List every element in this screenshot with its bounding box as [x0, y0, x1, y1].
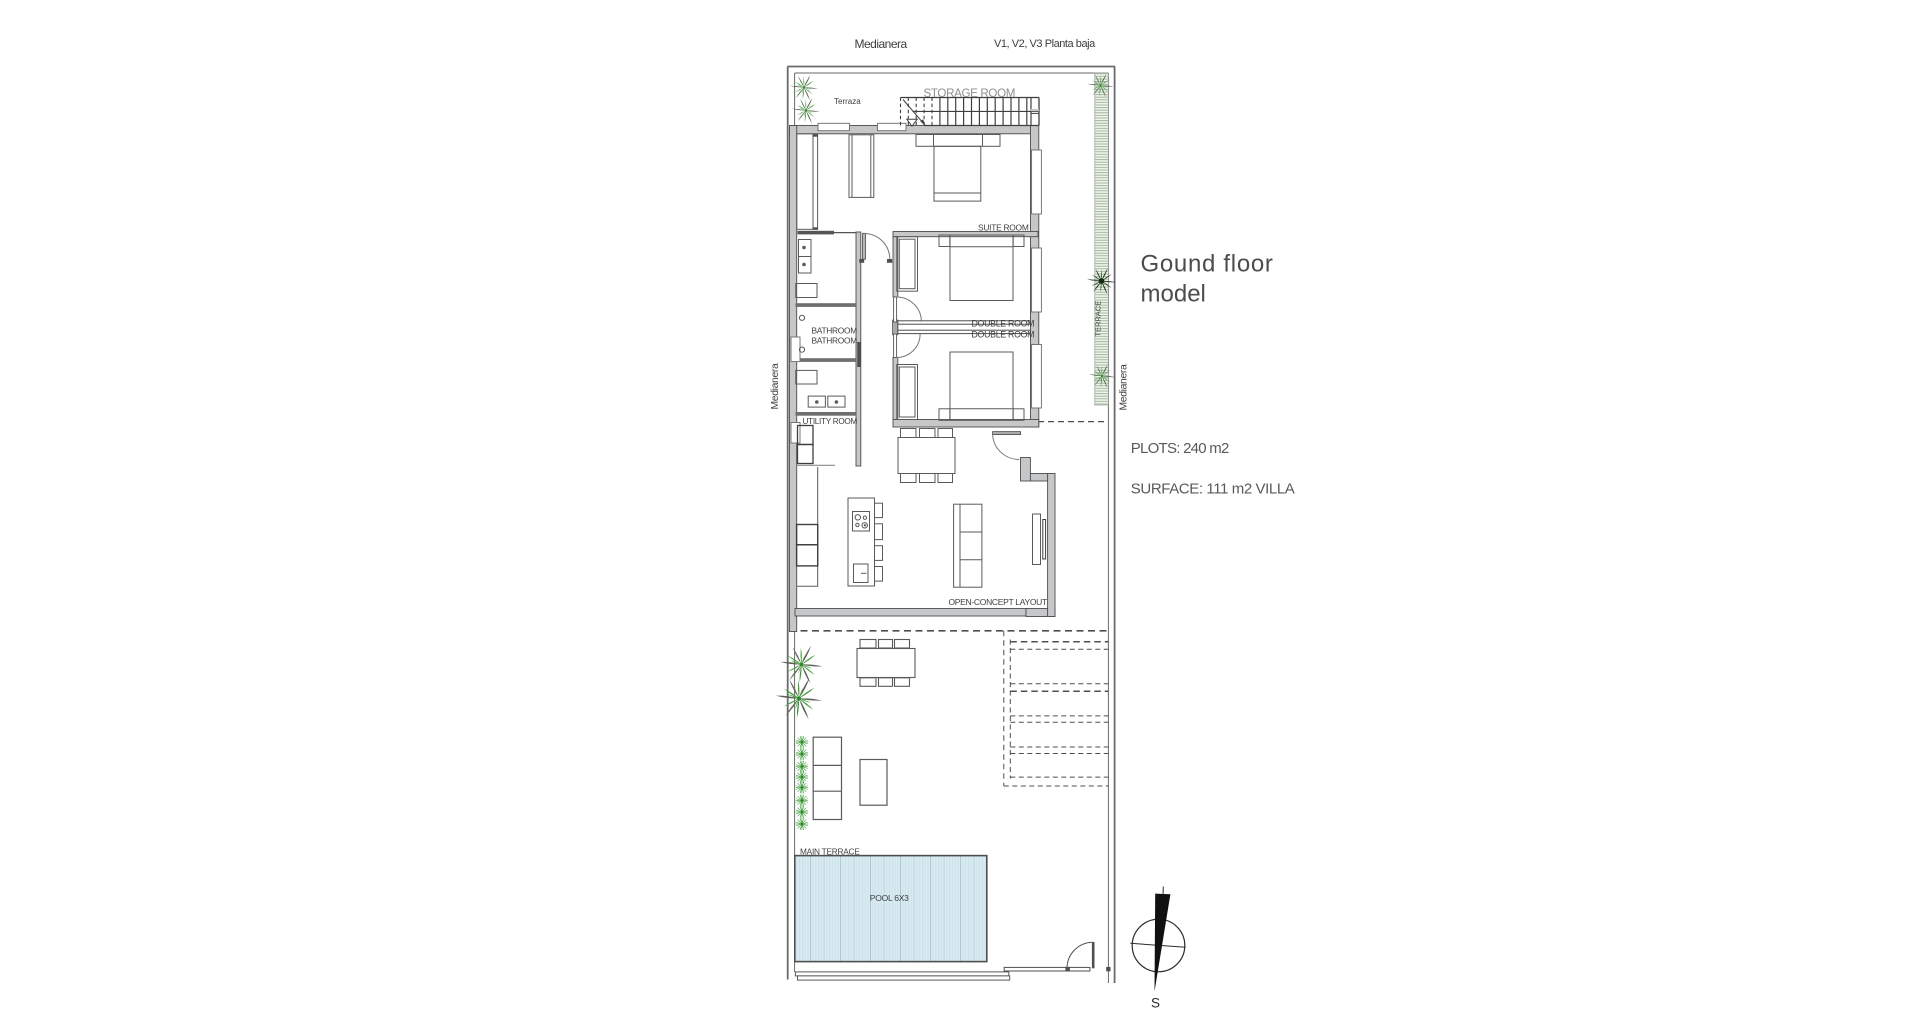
svg-text:S: S — [1151, 996, 1160, 1011]
svg-text:Terraza: Terraza — [834, 97, 861, 106]
svg-text:model: model — [1141, 281, 1206, 308]
svg-text:SURFACE: 111 m2 VILLA: SURFACE: 111 m2 VILLA — [1131, 480, 1295, 497]
svg-text:UTILITY ROOM: UTILITY ROOM — [803, 417, 858, 426]
svg-text:V1, V2, V3 Planta baja: V1, V2, V3 Planta baja — [994, 38, 1096, 50]
svg-text:DOUBLE ROOM: DOUBLE ROOM — [972, 318, 1035, 328]
svg-text:PLOTS: 240 m2: PLOTS: 240 m2 — [1131, 440, 1229, 457]
svg-text:TERRACE: TERRACE — [1094, 301, 1103, 337]
svg-text:DOUBLE ROOM: DOUBLE ROOM — [972, 329, 1035, 339]
svg-text:OPEN-CONCEPT LAYOUT: OPEN-CONCEPT LAYOUT — [949, 597, 1047, 607]
svg-text:Medianera: Medianera — [855, 37, 908, 51]
svg-text:SUITE ROOM: SUITE ROOM — [978, 223, 1029, 233]
svg-text:Gound floor: Gound floor — [1141, 250, 1274, 277]
svg-text:BATHROOM: BATHROOM — [812, 335, 858, 345]
svg-text:STORAGE ROOM: STORAGE ROOM — [924, 87, 1016, 100]
svg-text:POOL 6X3: POOL 6X3 — [870, 893, 909, 903]
svg-text:BATHROOM: BATHROOM — [812, 326, 858, 336]
svg-text:MAIN TERRACE: MAIN TERRACE — [800, 847, 860, 857]
svg-text:Medianera: Medianera — [770, 363, 781, 410]
svg-text:Medianera: Medianera — [1119, 364, 1130, 411]
